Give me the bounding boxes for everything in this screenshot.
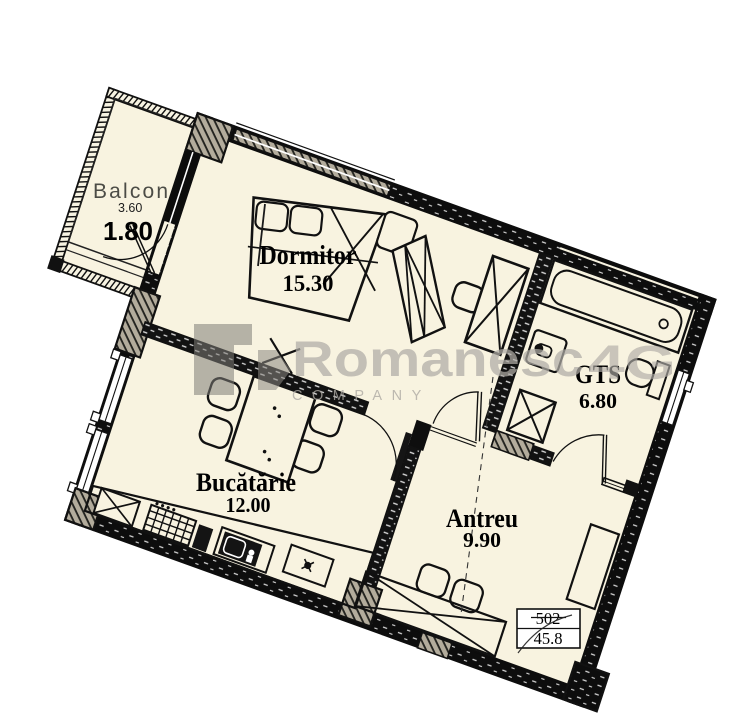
svg-text:COMPANY: COMPANY	[292, 388, 431, 404]
svg-text:15.30: 15.30	[283, 271, 334, 296]
svg-text:6.80: 6.80	[579, 389, 617, 413]
svg-text:Romanesc: Romanesc	[292, 331, 584, 387]
svg-text:12.00: 12.00	[226, 493, 271, 517]
svg-text:Dormitor: Dormitor	[260, 240, 357, 270]
svg-text:Balcon: Balcon	[93, 180, 168, 203]
svg-text:1.80: 1.80	[103, 216, 153, 246]
svg-text:9.90: 9.90	[463, 528, 501, 552]
svg-text:4G: 4G	[588, 337, 676, 390]
svg-text:3.60: 3.60	[118, 201, 142, 215]
